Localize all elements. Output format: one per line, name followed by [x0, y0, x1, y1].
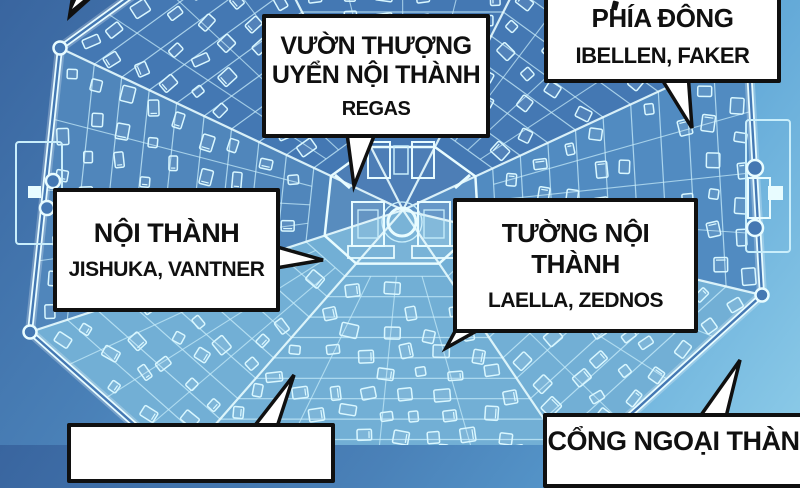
comic-panel: { "callouts": { "regas": { "title_lines"… [0, 0, 800, 445]
callout-inner-city: NỘI THÀNH JISHUKA, VANTNER [53, 188, 280, 312]
callout-subtitle: IBELLEN, FAKER [576, 43, 750, 69]
callout-inner-city-wall: TƯỜNG NỘI THÀNH LAELLA, ZEDNOS [453, 198, 698, 333]
callout-imperial-garden: VƯỜN THƯỢNG UYỂN NỘI THÀNH REGAS [262, 14, 490, 138]
callout-title: TƯỜNG NỘI THÀNH [457, 218, 694, 279]
callout-subtitle: JISHUKA, VANTNER [69, 258, 265, 282]
callout-outer-gate: CỔNG NGOẠI THÀNH [543, 413, 800, 488]
callout-east-side: PHÍA ĐÔNG IBELLEN, FAKER [544, 0, 781, 83]
callout-title-line2: UYỂN NỘI THÀNH [272, 61, 480, 91]
callout-title: CỔNG NGOẠI THÀNH [548, 426, 800, 458]
callout-title-line1: VƯỜN THƯỢNG [280, 32, 471, 62]
callout-bottom-left-cutoff [67, 423, 335, 483]
callout-title: NỘI THÀNH [94, 218, 240, 250]
callout-subtitle: REGAS [342, 98, 411, 121]
callout-subtitle: LAELLA, ZEDNOS [488, 289, 663, 313]
